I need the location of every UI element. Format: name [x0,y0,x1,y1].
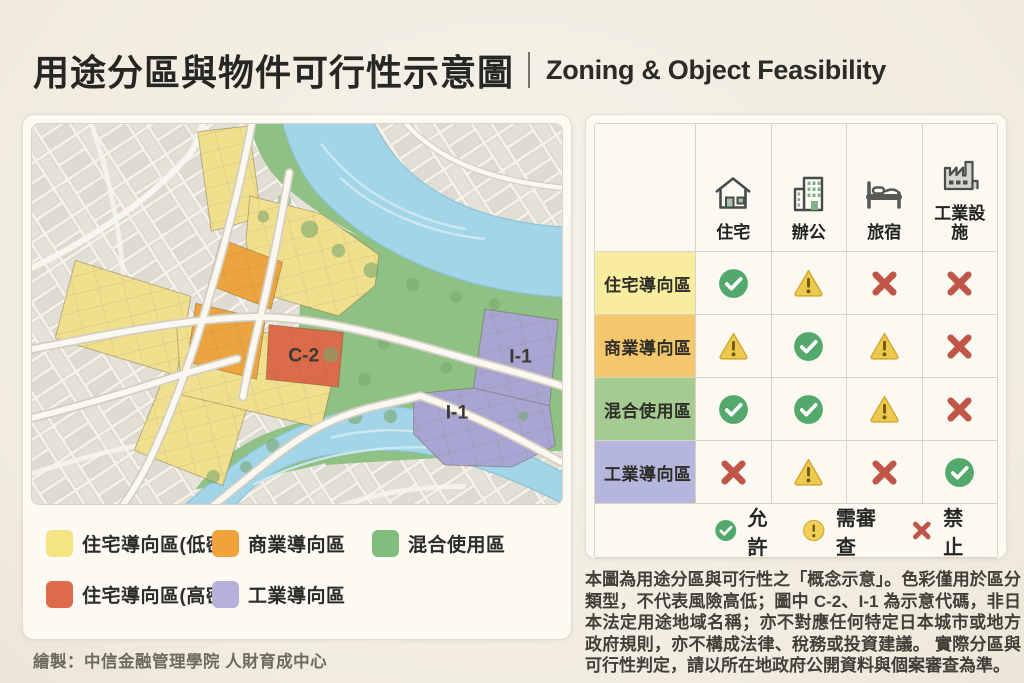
check-circle-icon [716,392,751,427]
matrix-row-label: 工業導向區 [595,441,695,503]
matrix-row-label: 商業導向區 [595,315,695,377]
cross-icon [942,266,977,301]
cross-icon [942,392,977,427]
check-circle-icon [713,517,739,544]
legend-label: 商業導向區 [248,530,346,557]
matrix-cell-allow [696,378,771,440]
legend-label: 住宅導向區(高密) [82,581,232,608]
disclaimer-text: 本圖為用途分區與可行性之「概念示意」。色彩僅用於區分類型，不代表風險高低；圖中 … [585,569,1021,677]
footer-credit: 繪製：中信金融管理學院 人財育成中心 [33,648,327,672]
matrix-cell-review [847,315,922,377]
cross-icon [867,266,902,301]
matrix-legend-item: 禁止 [909,502,981,559]
page-header: 用途分區與物件可行性示意圖 Zoning & Object Feasibilit… [33,44,886,96]
check-circle-icon [791,329,826,364]
legend-swatch [46,530,73,557]
column-label: 住宅 [716,223,750,242]
map-legend: 住宅導向區(低密)商業導向區混合使用區住宅導向區(高密)工業導向區 [46,530,571,608]
zone-label-c2: C-2 [288,345,319,367]
matrix-cell-deny [923,252,998,314]
cross-icon [867,455,902,490]
map-legend-item: 工業導向區 [212,581,372,608]
legend-swatch [212,581,239,608]
legend-label: 住宅導向區(低密) [82,530,232,557]
map-legend-item: 住宅導向區(低密) [46,530,212,557]
legend-swatch [212,530,239,557]
map-frame: C-2 I-1 I-1 [31,123,563,505]
warning-triangle-icon [867,392,902,427]
legend-label: 工業導向區 [248,581,346,608]
column-label: 工業設施 [934,204,986,242]
matrix-row-label: 住宅導向區 [595,252,695,314]
matrix-cell-deny [923,378,998,440]
matrix-cell-review [772,441,847,503]
matrix-legend: 允許需審查禁止 [595,504,997,557]
cross-icon [942,329,977,364]
feasibility-matrix: 住宅 辦公 [594,123,998,558]
legend-label: 混合使用區 [408,530,506,557]
map-legend-item: 混合使用區 [372,530,571,557]
map-legend-item: 住宅導向區(高密) [46,581,212,608]
matrix-cell-allow [772,378,847,440]
column-label: 旅宿 [867,223,901,242]
matrix-cell-deny [847,441,922,503]
matrix-cell-deny [923,315,998,377]
page-title-zh: 用途分區與物件可行性示意圖 [33,44,514,96]
map-legend-item: 商業導向區 [212,530,372,557]
zone-label-i1-upper: I-1 [509,346,532,368]
matrix-cell-review [696,315,771,377]
matrix-cell-deny [847,252,922,314]
matrix-cell-allow [772,315,847,377]
cross-icon [716,455,751,490]
matrix-cell-review [847,378,922,440]
matrix-row-label: 混合使用區 [595,378,695,440]
column-header-industrial: 工業設施 [923,124,998,251]
warning-triangle-icon [791,266,826,301]
matrix-legend-item: 允許 [713,502,785,559]
warning-circle-icon [801,517,827,544]
legend-swatch [46,581,73,608]
office-icon [785,171,833,219]
matrix-cell-allow [923,441,998,503]
matrix-legend-item: 需審查 [801,502,892,559]
house-icon [709,171,757,219]
check-circle-icon [791,392,826,427]
column-header-lodging: 旅宿 [847,124,922,251]
zone-label-i1-lower: I-1 [446,401,469,423]
check-circle-icon [942,455,977,490]
matrix-cell-review [772,252,847,314]
column-header-office: 辦公 [772,124,847,251]
check-circle-icon [716,266,751,301]
legend-swatch [372,530,399,557]
infographic-page: 用途分區與物件可行性示意圖 Zoning & Object Feasibilit… [0,0,1024,683]
bed-icon [860,171,908,219]
cross-icon [909,517,935,544]
matrix-cell-allow [696,252,771,314]
map-panel: C-2 I-1 I-1 住宅導向區(低密)商業導向區混合使用區住宅導向區(高密)… [22,114,572,640]
matrix-legend-label: 允許 [748,502,786,559]
zoning-map: C-2 I-1 I-1 [32,124,562,504]
column-label: 辦公 [792,223,826,242]
page-title-en: Zoning & Object Feasibility [546,55,886,86]
title-divider [528,52,530,88]
feasibility-panel: 住宅 辦公 [585,114,1007,559]
matrix-cell-deny [696,441,771,503]
warning-triangle-icon [867,329,902,364]
column-header-residential: 住宅 [696,124,771,251]
matrix-legend-label: 需審查 [836,502,893,559]
warning-triangle-icon [716,329,751,364]
matrix-corner-cell [595,124,695,251]
matrix-legend-label: 禁止 [943,502,981,559]
factory-icon [936,152,984,200]
warning-triangle-icon [791,455,826,490]
